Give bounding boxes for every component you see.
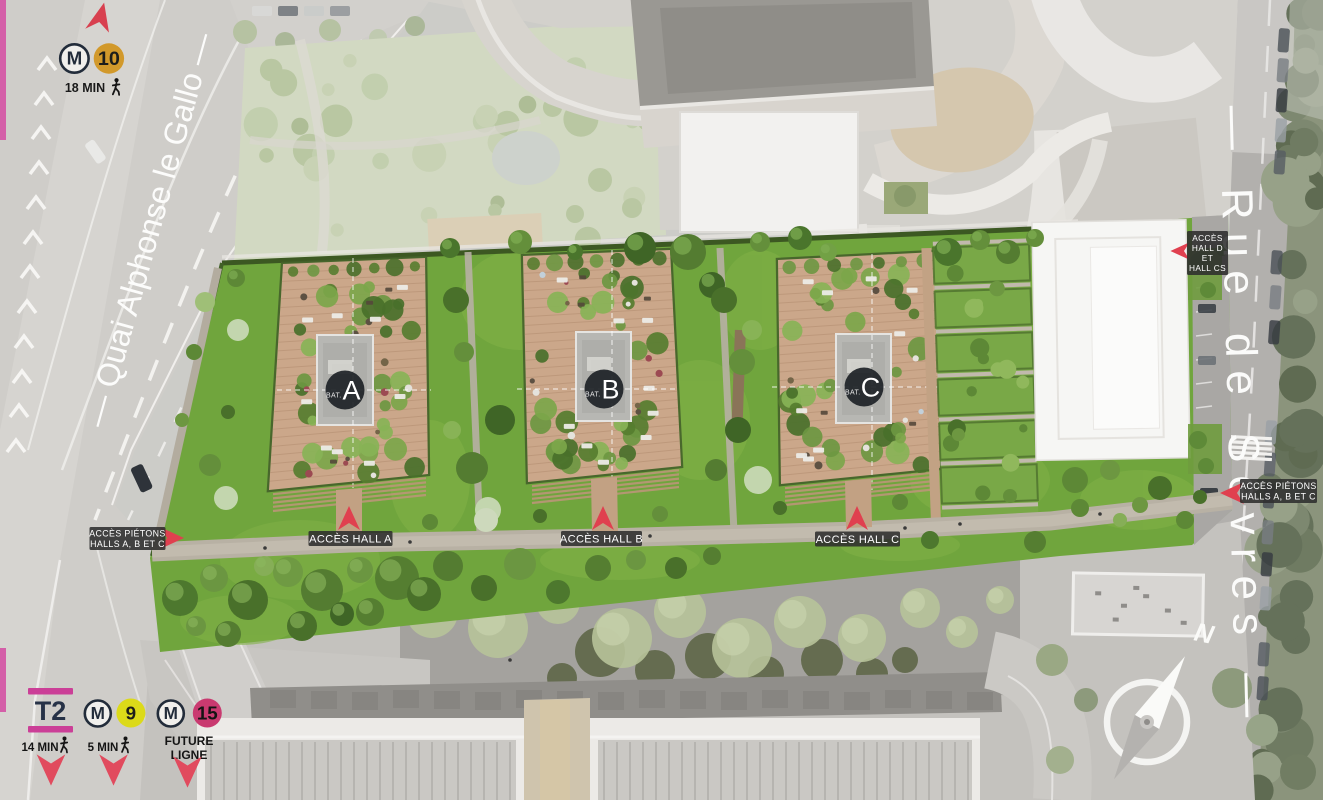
svg-text:A: A <box>342 376 360 406</box>
svg-text:HALL D: HALL D <box>1192 243 1223 253</box>
svg-text:15: 15 <box>197 702 218 723</box>
svg-text:BAT.: BAT. <box>845 390 860 397</box>
svg-text:ACCÈS PIÉTONS: ACCÈS PIÉTONS <box>1240 481 1316 491</box>
svg-text:C: C <box>861 373 881 403</box>
svg-text:HALL CS: HALL CS <box>1189 263 1226 273</box>
svg-text:FUTURE: FUTURE <box>165 734 214 748</box>
svg-text:BAT.: BAT. <box>326 393 341 400</box>
svg-text:ACCÈS HALL B: ACCÈS HALL B <box>560 533 643 546</box>
svg-text:18 MIN: 18 MIN <box>65 81 105 95</box>
svg-text:B: B <box>601 375 619 405</box>
svg-text:M: M <box>164 703 178 723</box>
svg-text:BAT.: BAT. <box>585 392 600 399</box>
svg-text:5 MIN: 5 MIN <box>88 742 119 754</box>
svg-text:M: M <box>67 48 83 69</box>
svg-text:HALLS A, B ET C: HALLS A, B ET C <box>1241 492 1316 502</box>
svg-text:14 MIN: 14 MIN <box>21 742 58 754</box>
svg-text:ACCÈS HALL A: ACCÈS HALL A <box>309 533 392 546</box>
svg-text:ET: ET <box>1202 253 1213 263</box>
svg-text:ACCÈS: ACCÈS <box>1192 233 1223 243</box>
svg-text:M: M <box>91 703 105 723</box>
svg-text:ACCÈS PIÉTONS: ACCÈS PIÉTONS <box>89 528 165 538</box>
svg-text:10: 10 <box>98 48 120 70</box>
svg-text:ACCÈS HALL C: ACCÈS HALL C <box>816 533 900 546</box>
svg-text:T2: T2 <box>35 696 67 726</box>
svg-text:HALLS A, B ET C: HALLS A, B ET C <box>90 539 165 549</box>
svg-text:9: 9 <box>126 702 136 723</box>
